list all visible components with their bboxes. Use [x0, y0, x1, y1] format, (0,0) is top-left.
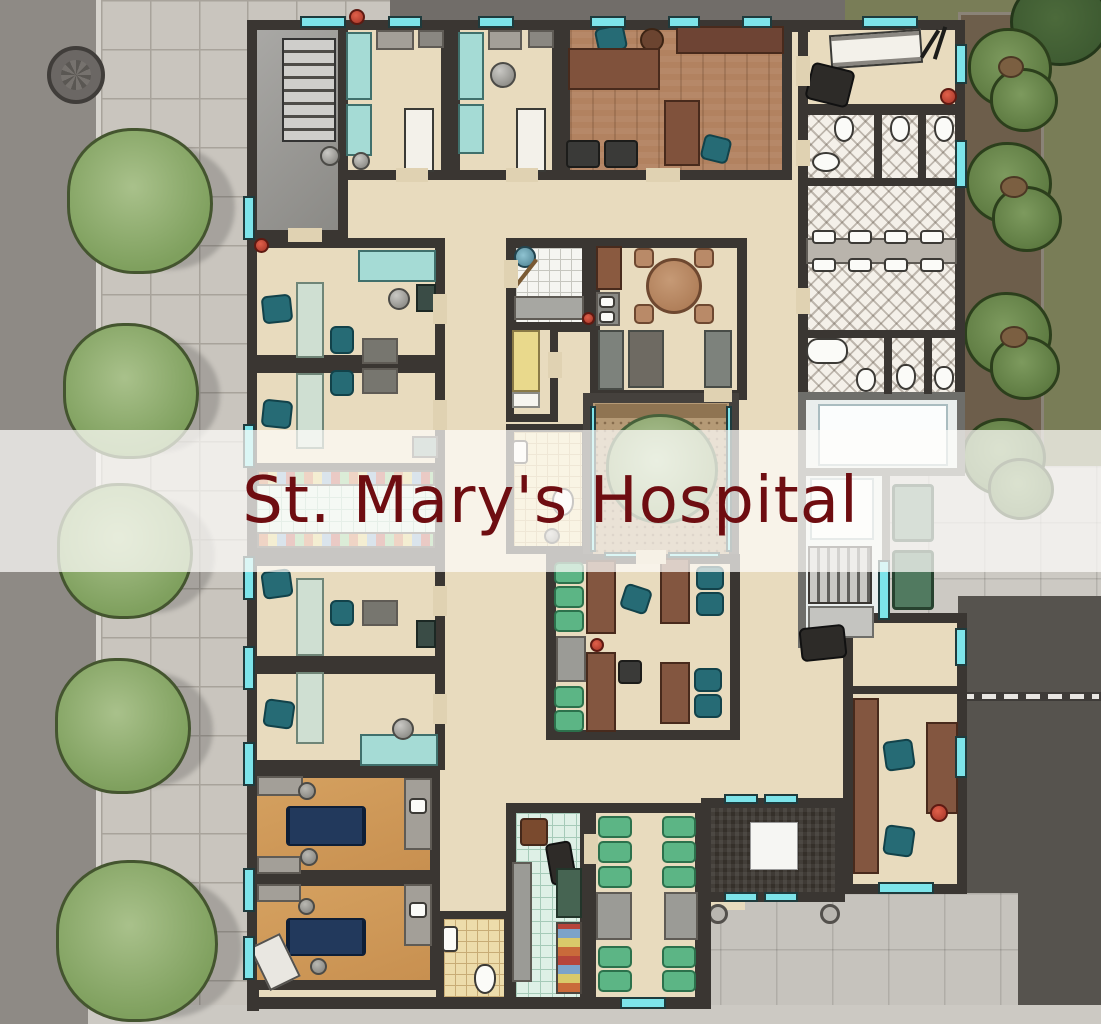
interior-door: [288, 228, 322, 242]
interior-door: [433, 294, 447, 324]
exterior-wall: [780, 20, 810, 32]
toilet: [934, 366, 954, 390]
stool: [298, 782, 316, 800]
glove-counter: [514, 296, 584, 320]
exterior-window: [478, 16, 514, 28]
sink: [848, 258, 872, 272]
street-lamp: [820, 904, 840, 924]
bed-yellow: [512, 330, 540, 392]
supply-counter: [376, 30, 414, 50]
office-chair: [882, 824, 916, 858]
pillow: [512, 392, 540, 408]
exterior-window: [955, 736, 967, 778]
waiting-chair: [662, 946, 696, 968]
stool: [300, 848, 318, 866]
wardrobe: [628, 330, 664, 388]
wheelchair: [798, 624, 847, 663]
trash-bin: [320, 146, 340, 166]
biohazard-marker: [940, 88, 957, 105]
side-table: [664, 892, 698, 940]
desk-gray: [362, 368, 398, 394]
toilet: [834, 116, 854, 142]
waiting-chair: [598, 841, 632, 863]
supply-shelf: [556, 922, 582, 994]
sink: [442, 926, 458, 952]
exterior-window: [955, 140, 967, 188]
hospital-bed-white: [404, 108, 434, 172]
interior-door: [796, 140, 810, 166]
red-hydrant-marker: [349, 9, 365, 25]
tree-trunk: [1000, 176, 1028, 198]
bush-tree: [55, 658, 191, 794]
desk-gray: [362, 600, 398, 626]
waiting-chair: [598, 866, 632, 888]
toilet: [856, 368, 876, 392]
wall-monitor: [416, 620, 436, 648]
exterior-window: [300, 16, 346, 28]
manhole-cover-icon: [47, 46, 105, 104]
dining-chair: [634, 248, 654, 268]
round-table: [646, 258, 702, 314]
desk: [664, 100, 700, 166]
sink: [409, 902, 427, 918]
office-chair: [694, 694, 722, 718]
sideboard-counter: [676, 26, 784, 54]
bush-tree: [67, 128, 213, 274]
interior-wall: [806, 330, 957, 338]
toilet: [934, 116, 954, 142]
waiting-chair: [598, 970, 632, 992]
toilet: [890, 116, 910, 142]
equipment-cart: [352, 152, 370, 170]
exterior-window: [620, 997, 666, 1009]
office-chair: [330, 326, 354, 354]
interior-door: [646, 168, 680, 182]
entrance-door-glass: [724, 794, 758, 804]
exterior-window: [590, 16, 626, 28]
interior-door: [433, 400, 447, 430]
waiting-chair: [662, 841, 696, 863]
dining-chair: [694, 248, 714, 268]
interior-wall: [924, 338, 932, 394]
waiting-chair: [554, 686, 584, 708]
exterior-window: [243, 742, 255, 786]
exam-bed-teal: [358, 250, 436, 282]
sink: [920, 230, 944, 244]
exterior-window: [243, 936, 255, 980]
procedure-couch: [286, 806, 366, 846]
desk: [926, 722, 958, 814]
hospital-bed-teal: [346, 104, 372, 156]
sink: [884, 258, 908, 272]
evergreen-tree: [990, 68, 1058, 132]
interior-door: [396, 168, 428, 182]
evergreen-tree: [990, 336, 1060, 400]
desk: [660, 662, 690, 724]
office-chair: [330, 600, 354, 626]
procedure-couch: [286, 918, 366, 956]
stairs: [282, 38, 336, 142]
interior-door: [796, 288, 810, 314]
wall-cabinet: [418, 30, 444, 48]
exterior-window: [668, 16, 700, 28]
waiting-chair: [662, 816, 696, 838]
sink: [599, 311, 615, 323]
side-table: [490, 62, 516, 88]
street-lamp: [708, 904, 728, 924]
desk: [568, 48, 660, 90]
wooden-chair: [520, 818, 548, 846]
exterior-window: [388, 16, 422, 28]
desk-chair-black: [618, 660, 642, 684]
gurney: [829, 29, 923, 69]
exterior-window: [862, 16, 918, 28]
reception-counter: [853, 698, 879, 874]
fence: [958, 692, 1101, 701]
sink: [812, 230, 836, 244]
supply-counter: [488, 30, 522, 50]
exterior-window: [243, 646, 255, 690]
waiting-chair-black: [566, 140, 600, 168]
office-chair: [330, 370, 354, 396]
red-kettle: [582, 312, 595, 325]
toilet: [474, 964, 496, 994]
entrance-sign-panel: [750, 822, 798, 870]
exterior-window: [955, 628, 967, 666]
medical-lamp: [392, 718, 414, 740]
hospital-floorplan-map: St. Mary's Hospital: [0, 0, 1101, 1024]
sink: [884, 230, 908, 244]
red-phone: [930, 804, 948, 822]
hospital-bed-teal: [458, 104, 484, 154]
exterior-window: [878, 882, 934, 894]
hospital-bed-white: [516, 108, 546, 172]
waiting-chair-black: [604, 140, 638, 168]
dining-chair: [694, 304, 714, 324]
interior-door: [548, 352, 562, 378]
waiting-chair: [554, 610, 584, 632]
waiting-chair: [598, 816, 632, 838]
locker: [598, 330, 624, 390]
waiting-chair: [598, 946, 632, 968]
sink-counter: [404, 778, 432, 850]
office-chair: [262, 698, 296, 730]
hospital-bed-teal: [458, 32, 484, 100]
interior-wall: [918, 113, 926, 183]
tree-trunk: [998, 56, 1024, 78]
waiting-chair: [662, 970, 696, 992]
interior-door: [504, 260, 518, 288]
medical-lamp: [388, 288, 410, 310]
instrument-counter: [257, 884, 301, 902]
dining-chair: [634, 304, 654, 324]
interior-door: [506, 168, 538, 182]
sink: [812, 152, 840, 172]
exterior-wall: [699, 900, 711, 1007]
red-phone: [590, 638, 604, 652]
map-title: St. Mary's Hospital: [242, 464, 858, 538]
exterior-window: [243, 196, 255, 240]
interior-door: [433, 586, 447, 616]
exam-table: [296, 282, 324, 358]
sink: [920, 258, 944, 272]
stool: [310, 958, 327, 975]
instrument-counter: [257, 856, 301, 874]
bathtub: [806, 338, 848, 364]
sink: [812, 258, 836, 272]
locker: [704, 330, 732, 388]
office-chair: [261, 294, 294, 325]
exterior-window: [742, 16, 772, 28]
office-chair: [694, 668, 722, 692]
waiting-chair: [662, 866, 696, 888]
side-table: [596, 892, 632, 940]
hospital-bed-teal: [346, 32, 372, 100]
office-chair: [696, 592, 724, 616]
sink: [599, 296, 615, 308]
tree-trunk: [1000, 326, 1028, 348]
entrance-door-glass: [724, 892, 758, 902]
exam-table: [296, 672, 324, 744]
interior-wall: [874, 113, 882, 183]
entrance-door-glass: [764, 892, 798, 902]
exterior-window: [243, 868, 255, 912]
dish-counter: [512, 862, 532, 982]
interior-door: [704, 388, 732, 402]
desk: [586, 652, 616, 732]
interior-wall: [884, 338, 892, 394]
evergreen-tree: [992, 186, 1062, 252]
office-chair: [260, 568, 294, 600]
desk-gray: [362, 338, 398, 364]
toilet: [896, 364, 916, 390]
side-table: [556, 636, 586, 682]
waiting-chair: [554, 586, 584, 608]
sink: [409, 798, 427, 814]
entrance-door-glass: [764, 794, 798, 804]
instrument-counter: [257, 776, 303, 796]
title-banner: St. Mary's Hospital: [0, 430, 1101, 572]
bush-tree: [56, 860, 218, 1022]
fire-extinguisher-marker: [254, 238, 269, 253]
interior-door: [796, 56, 810, 86]
office-chair: [882, 738, 916, 772]
stool: [298, 898, 315, 915]
interior-door: [433, 694, 447, 724]
waiting-chair: [554, 710, 584, 732]
supply-shelf-green: [556, 868, 582, 918]
sink: [848, 230, 872, 244]
kitchen-counter: [596, 246, 622, 290]
exterior-window: [955, 44, 967, 84]
exam-table: [296, 578, 324, 656]
office-chair: [261, 399, 294, 430]
wall-cabinet: [528, 30, 554, 48]
interior-wall: [853, 686, 957, 694]
interior-door: [584, 834, 598, 864]
